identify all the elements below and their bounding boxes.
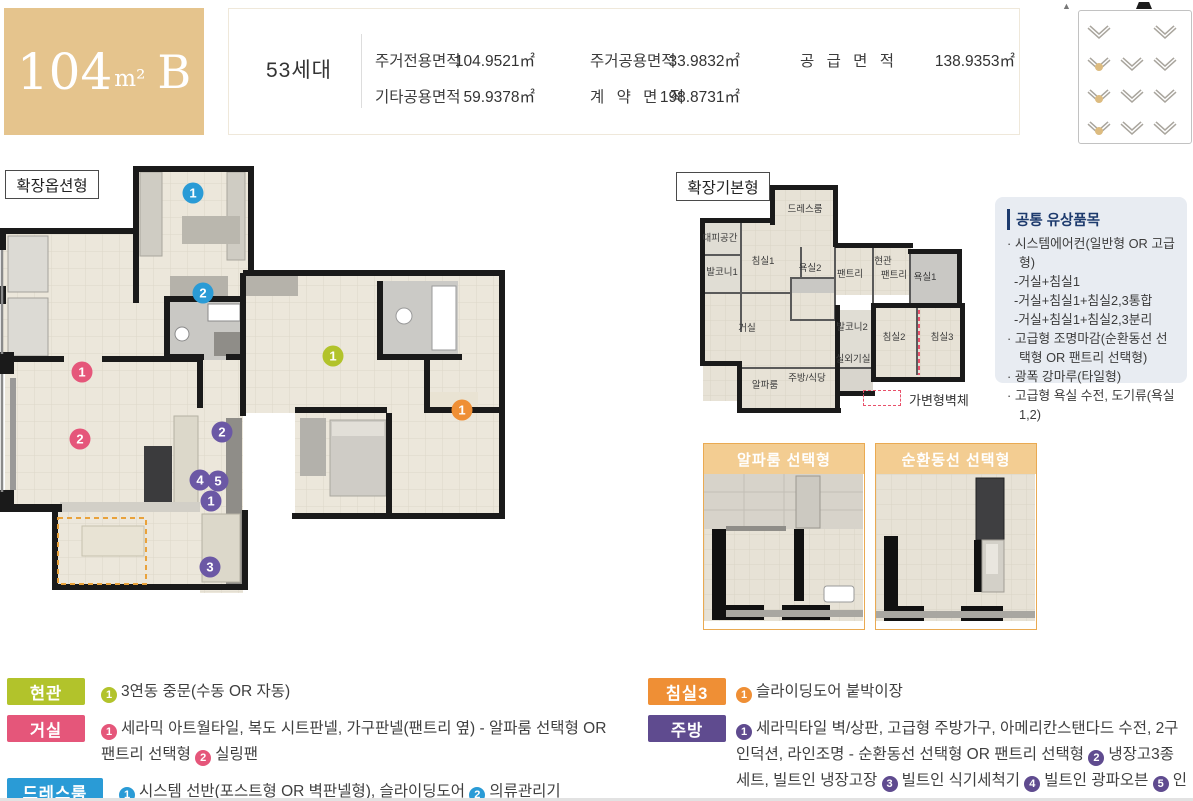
legend-row: 거실1세라믹 아트월타일, 복도 시트판넬, 가구판넬(팬트리 옆) - 알파룸…	[7, 715, 622, 768]
households-count: 53세대	[240, 54, 358, 84]
numbered-marker: 5	[1153, 776, 1169, 792]
plan-badge-purple-3: 3	[200, 557, 221, 578]
area-value: 198.8731㎡	[650, 85, 740, 107]
room-label: 드레스룸	[788, 204, 823, 215]
room-label: 팬트리	[837, 269, 863, 280]
option-card-circulation: 순환동선 선택형	[875, 443, 1037, 630]
building-icon	[1155, 123, 1175, 132]
numbered-marker: 1	[101, 687, 117, 703]
legend-description: 13연동 중문(수동 OR 자동)	[101, 679, 290, 705]
area-value: 33.9832㎡	[652, 49, 740, 71]
plan-badge-pink-2: 2	[70, 429, 91, 450]
paid-item: · 광폭 강마루(타일형)	[1007, 367, 1177, 386]
building-icon	[1155, 27, 1175, 36]
svg-text:2: 2	[76, 432, 83, 447]
room-label: 욕실1	[914, 272, 937, 283]
svg-text:5: 5	[214, 474, 221, 489]
plan-badge-purple-4: 4	[190, 470, 211, 491]
svg-text:1: 1	[329, 349, 336, 364]
building-icon	[1155, 91, 1175, 100]
plan-badge-blue-1: 1	[183, 183, 204, 204]
svg-text:1: 1	[207, 494, 214, 509]
legend-description: 1슬라이딩도어 붙박이장	[736, 679, 903, 705]
numbered-marker: 2	[195, 750, 211, 766]
numbered-marker: 1	[101, 724, 117, 740]
svg-text:1: 1	[458, 403, 465, 418]
room-label: 발코니1	[706, 267, 738, 278]
plan-badge-purple-2: 2	[212, 422, 233, 443]
option-card-title: 순환동선 선택형	[876, 444, 1036, 474]
info-divider	[361, 34, 362, 108]
legend-row: 침실31슬라이딩도어 붙박이장	[648, 678, 1188, 705]
area-value: 59.9378㎡	[445, 85, 535, 107]
paid-item: · 시스템에어컨(일반형 OR 고급형)	[1007, 234, 1177, 272]
plan-badge-orange-1: 1	[452, 400, 473, 421]
variable-wall-legend-label: 가변형벽체	[909, 390, 969, 409]
svg-text:2: 2	[199, 286, 206, 301]
plan-badge-purple-1: 1	[201, 491, 222, 512]
legend-row: 주방1세라믹타일 벽/상판, 고급형 주방가구, 아메리칸스탠다드 수전, 2구…	[648, 715, 1188, 801]
option-card-alpha-room: 알파룸 선택형	[703, 443, 865, 630]
room-label: 거실	[738, 323, 755, 334]
legend-chip: 침실3	[648, 678, 726, 705]
room-label: 현관	[874, 256, 892, 267]
paid-items-title: 공통 유상품목	[1007, 209, 1177, 230]
unit-type-tile: 104 m² B	[4, 8, 204, 135]
svg-text:2: 2	[218, 425, 225, 440]
room-label: 욕실2	[799, 263, 822, 274]
svg-text:3: 3	[206, 560, 213, 575]
plan-badge-purple-5: 5	[208, 471, 229, 492]
common-paid-items-box: 공통 유상품목 · 시스템에어컨(일반형 OR 고급형)-거실+침실1-거실+침…	[995, 197, 1187, 383]
paid-item: · 고급형 욕실 수전, 도기류(욕실1,2)	[1007, 386, 1177, 424]
legend-chip: 현관	[7, 678, 85, 705]
room-label: 주방/식당	[788, 373, 826, 384]
room-label: 팬트리	[881, 270, 907, 281]
plan-badge-green-1: 1	[323, 346, 344, 367]
room-label: 침실1	[752, 256, 775, 267]
legend-row: 현관13연동 중문(수동 OR 자동)	[7, 678, 622, 705]
building-icon	[1122, 123, 1142, 132]
site-key-plan	[1078, 10, 1192, 144]
legend-column-right: 침실31슬라이딩도어 붙박이장주방1세라믹타일 벽/상판, 고급형 주방가구, …	[648, 678, 1188, 801]
area-value: 138.9353㎡	[915, 49, 1015, 71]
room-label: 알파룸	[752, 380, 778, 391]
floor-plan-basic: 드레스룸대피공간침실1발코니1욕실2팬트리현관팬트리욕실1거실발코니2침실2침실…	[695, 185, 970, 415]
paid-item: -거실+침실1+침실2,3분리	[1007, 310, 1177, 329]
paid-item: · 고급형 조명마감(순환동선 선택형 OR 팬트리 선택형)	[1007, 329, 1177, 367]
legend-column-left: 현관13연동 중문(수동 OR 자동)거실1세라믹 아트월타일, 복도 시트판넬…	[7, 678, 622, 801]
building-icon	[1089, 123, 1109, 135]
compass-icon: ▲	[1062, 1, 1071, 11]
option-card-circulation-plan	[876, 474, 1035, 628]
numbered-marker: 1	[736, 724, 752, 740]
legend-chip: 거실	[7, 715, 85, 742]
scale-marker-icon	[1136, 2, 1152, 9]
paid-item: -거실+침실1+침실2,3통합	[1007, 291, 1177, 310]
option-card-alpha-plan	[704, 474, 863, 628]
building-icon	[1089, 27, 1109, 36]
plan-badge-pink-1: 1	[72, 362, 93, 383]
unit-size: 104	[17, 47, 112, 97]
legend-description: 1세라믹 아트월타일, 복도 시트판넬, 가구판넬(팬트리 옆) - 알파룸 선…	[101, 716, 622, 768]
room-label: 침실2	[883, 332, 906, 343]
building-icon	[1122, 59, 1142, 68]
paid-item: -거실+침실1	[1007, 272, 1177, 291]
paid-items-list: · 시스템에어컨(일반형 OR 고급형)-거실+침실1-거실+침실1+침실2,3…	[1007, 234, 1177, 424]
building-icon	[1122, 91, 1142, 100]
numbered-marker: 1	[736, 687, 752, 703]
option-card-title: 알파룸 선택형	[704, 444, 864, 474]
room-label: 실외기실	[836, 353, 871, 365]
legend-description: 1세라믹타일 벽/상판, 고급형 주방가구, 아메리칸스탠다드 수전, 2구 인…	[736, 716, 1188, 801]
area-value: 104.9521㎡	[445, 49, 535, 71]
room-label: 침실3	[931, 332, 954, 343]
plan-badge-blue-2: 2	[193, 283, 214, 304]
svg-text:1: 1	[78, 365, 85, 380]
building-icon	[1089, 91, 1109, 103]
area-label: 공 급 면 적	[800, 49, 898, 71]
room-label: 대피공간	[703, 233, 738, 244]
building-icon	[1089, 59, 1109, 71]
floorplan-brochure-page: 104 m² B 53세대 주거전용면적 104.9521㎡ 주거공용면적 33…	[0, 0, 1193, 801]
unit-size-sup: m²	[114, 66, 145, 92]
numbered-marker: 3	[882, 776, 898, 792]
numbered-marker: 2	[1088, 750, 1104, 766]
legend-chip: 주방	[648, 715, 726, 742]
numbered-marker: 4	[1024, 776, 1040, 792]
floor-plan-option: 12121124513	[0, 166, 510, 598]
unit-type-letter: B	[157, 45, 191, 99]
building-icon	[1155, 59, 1175, 68]
room-label: 발코니2	[836, 322, 868, 333]
variable-wall-legend-swatch	[863, 390, 901, 406]
svg-text:1: 1	[189, 186, 196, 201]
svg-text:4: 4	[196, 473, 204, 488]
